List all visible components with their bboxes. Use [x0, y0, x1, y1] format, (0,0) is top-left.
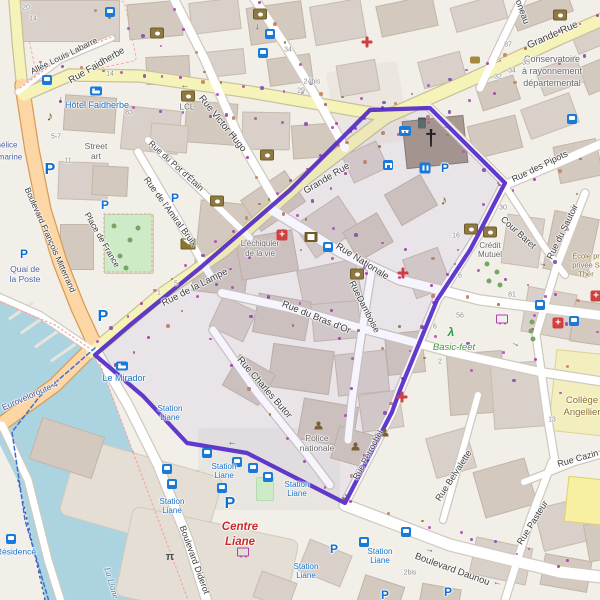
transit-label-line: Station [158, 404, 183, 413]
tree-icon [531, 337, 536, 342]
place-label-lcl: LCL [180, 103, 195, 112]
arrow-icon: → [254, 22, 265, 32]
transit-stop-label: StationLiane [212, 462, 237, 480]
bus-icon [42, 75, 52, 85]
atm-icon [253, 9, 267, 20]
arrow-icon: → [227, 440, 237, 451]
house-number: 2 [438, 358, 442, 365]
house-number: 2bis [404, 569, 417, 576]
place-label-line: Quai de [10, 264, 41, 274]
place-label-line: Hôtel Faidherbe [65, 100, 129, 110]
bus-icon [265, 29, 275, 39]
parking-icon: P [330, 542, 338, 556]
place-label-line: nationale [300, 443, 335, 453]
place-label-street-art: Streetart [85, 141, 108, 161]
house-number: 5 [174, 280, 178, 287]
house-number: 32 [494, 73, 502, 80]
tree-icon [495, 270, 500, 275]
toilets-icon [420, 163, 431, 174]
place-label-line: marine [0, 153, 22, 162]
bus-icon [263, 472, 273, 482]
atm-icon [150, 28, 164, 39]
cross-icon [362, 37, 373, 48]
house-number: 5-7 [51, 133, 61, 140]
transit-label-line: Liane [212, 471, 237, 480]
place-label-line: École pr [572, 252, 600, 261]
bus-icon [217, 483, 227, 493]
parking-icon: P [98, 308, 109, 326]
tree-icon [487, 279, 492, 284]
atm-icon [260, 150, 274, 161]
place-label-line: Thér [572, 270, 600, 279]
place-label-line: privée S [572, 261, 600, 270]
bed-icon [90, 87, 102, 96]
place-label-basic-feet: Basic-feet [433, 343, 475, 353]
parking-icon: P [441, 161, 449, 175]
bus-icon [567, 114, 577, 124]
bus-icon [535, 300, 545, 310]
medsq-icon: + [553, 318, 564, 329]
place-label-line: hélice [0, 141, 17, 150]
place-label-college-angellier: CollègeAngellier [564, 395, 600, 419]
place-label-line: à rayonnement [522, 65, 582, 77]
place-label-line: Le Mirador [102, 373, 145, 383]
place-label-quai-de-la-poste: Quai dela Poste [10, 264, 41, 284]
cross-icon [398, 268, 409, 279]
house-number: 1 [157, 289, 161, 296]
bus-icon [248, 463, 258, 473]
bus-icon [167, 479, 177, 489]
place-label-line: art [85, 151, 108, 161]
parking-icon: P [171, 191, 179, 205]
transit-label-line: Station [160, 497, 185, 506]
transit-label-line: Liane [368, 556, 393, 565]
tree-icon [529, 329, 534, 334]
runner-icon: λ [448, 325, 455, 339]
tree-icon [498, 283, 503, 288]
place-label-line: départemental [522, 77, 582, 89]
place-label-marine: marine [0, 153, 22, 162]
transit-stop-label: StationLiane [158, 404, 183, 422]
place-label-line: Résidence [0, 548, 36, 557]
place-label-line: LCL [180, 103, 195, 112]
tree-icon [128, 238, 133, 243]
arrow-icon: → [442, 120, 453, 131]
place-label-line: Street [85, 141, 108, 151]
transit-label-line: Liane [294, 571, 319, 580]
atm-icon [464, 224, 478, 235]
transit-label-line: Liane [160, 506, 185, 515]
parking-icon: P [225, 495, 236, 513]
house-number: 20 [22, 4, 30, 11]
trash-icon [418, 118, 426, 129]
place-label-line: Basic-feet [433, 343, 475, 353]
bench-icon [383, 160, 393, 170]
music-icon: ♪ [441, 193, 448, 208]
transit-label-line: Liane [158, 413, 183, 422]
bus-icon [323, 242, 333, 252]
atm-icon [553, 10, 567, 21]
shop-icon [470, 57, 480, 64]
place-label-line: L'échiquier [241, 239, 279, 249]
house-number: 6 [458, 272, 462, 279]
transit-stop-label: StationLiane [160, 497, 185, 515]
house-number: 14 [29, 15, 37, 22]
bus-icon [105, 7, 115, 17]
place-label-line: Crédit [478, 241, 502, 250]
place-label-conservatoire: Conservatoireà rayonnementdépartemental [522, 53, 582, 89]
parking-icon: P [45, 161, 56, 179]
person-icon [351, 443, 360, 452]
house-number: 6 [433, 323, 437, 330]
house-number: 81 [508, 291, 516, 298]
place-label-ecole-privee: École prprivée SThér [572, 252, 600, 279]
place-label-police-nationale: Policenationale [300, 433, 335, 453]
bus-icon [162, 464, 172, 474]
place-label-line: Police [300, 433, 335, 443]
house-number: 35 [522, 59, 530, 66]
transit-stop-label: StationLiane [294, 562, 319, 580]
cinema-icon [305, 232, 318, 242]
transit-label-line: Station [368, 547, 393, 556]
transit-label-line: Station [285, 480, 310, 489]
house-number: 14 [106, 70, 114, 77]
transit-label-line: Liane [285, 489, 310, 498]
parking-icon: P [444, 585, 452, 599]
music-icon: ♪ [47, 109, 54, 124]
house-number: 11 [64, 157, 71, 164]
person-icon [314, 422, 323, 431]
bed-icon [116, 362, 128, 371]
medsq-icon: + [591, 291, 600, 302]
car-icon [399, 126, 411, 136]
bus-icon [359, 537, 369, 547]
place-label-line: de la vie [241, 249, 279, 259]
bus-icon [202, 448, 212, 458]
parking-icon: P [101, 198, 109, 212]
transit-stop-label: StationLiane [368, 547, 393, 565]
house-number: 13 [548, 416, 556, 423]
parking-icon: P [381, 588, 389, 600]
house-number: 34 [284, 46, 292, 53]
place-label-line: Mutuel [478, 250, 502, 259]
map-canvas[interactable]: PPPPPPPPPP+++†♪♪πλ→→→→→→→→→→→Rue Faidher… [0, 0, 600, 600]
place-label-line: Conservatoire [522, 53, 582, 65]
bus-icon [258, 48, 268, 58]
place-label-centre-liane: CentreLiane [222, 520, 258, 550]
place-label-line: Centre [222, 520, 258, 535]
place-label-echiquier: L'échiquierde la vie [241, 239, 279, 259]
bus-icon [569, 316, 579, 326]
place-label-credit-mutuel: CréditMutuel [478, 241, 502, 259]
house-number: 56 [456, 312, 464, 319]
house-number: 87 [504, 41, 512, 48]
tree-icon [485, 262, 490, 267]
atm-icon [350, 269, 364, 280]
bus-icon [401, 527, 411, 537]
bus-icon [6, 534, 16, 544]
house-number: 16 [452, 232, 460, 239]
church-icon: † [425, 125, 437, 151]
place-label-line: Angellier [564, 407, 600, 419]
parking-icon: P [20, 247, 28, 261]
transit-label-line: Station [212, 462, 237, 471]
cart-icon [496, 315, 508, 324]
house-number: 24bis [304, 78, 321, 85]
place-label-line: Collège [564, 395, 600, 407]
place-label-le-mirador: Le Mirador [102, 373, 145, 383]
tree-icon [530, 320, 535, 325]
place-label-residence: Résidence [0, 548, 36, 557]
transit-stop-label: StationLiane [285, 480, 310, 498]
place-label-helice: hélice [0, 141, 17, 150]
tree-icon [124, 266, 129, 271]
picnic-icon: π [166, 551, 174, 563]
house-number: 83 [125, 109, 133, 116]
tree-icon [136, 226, 141, 231]
cross-icon [397, 392, 408, 403]
house-number: 34 [508, 67, 516, 74]
house-number: 29 [297, 87, 305, 94]
arrow-icon: → [181, 83, 190, 93]
transit-label-line: Station [294, 562, 319, 571]
place-label-hotel-faidherbe: Hôtel Faidherbe [65, 100, 129, 110]
tree-icon [112, 224, 117, 229]
atm-icon [210, 196, 224, 207]
house-number: 30 [499, 204, 507, 211]
place-label-line: Liane [222, 535, 258, 550]
place-label-line: la Poste [10, 274, 41, 284]
atm-icon [483, 227, 497, 238]
